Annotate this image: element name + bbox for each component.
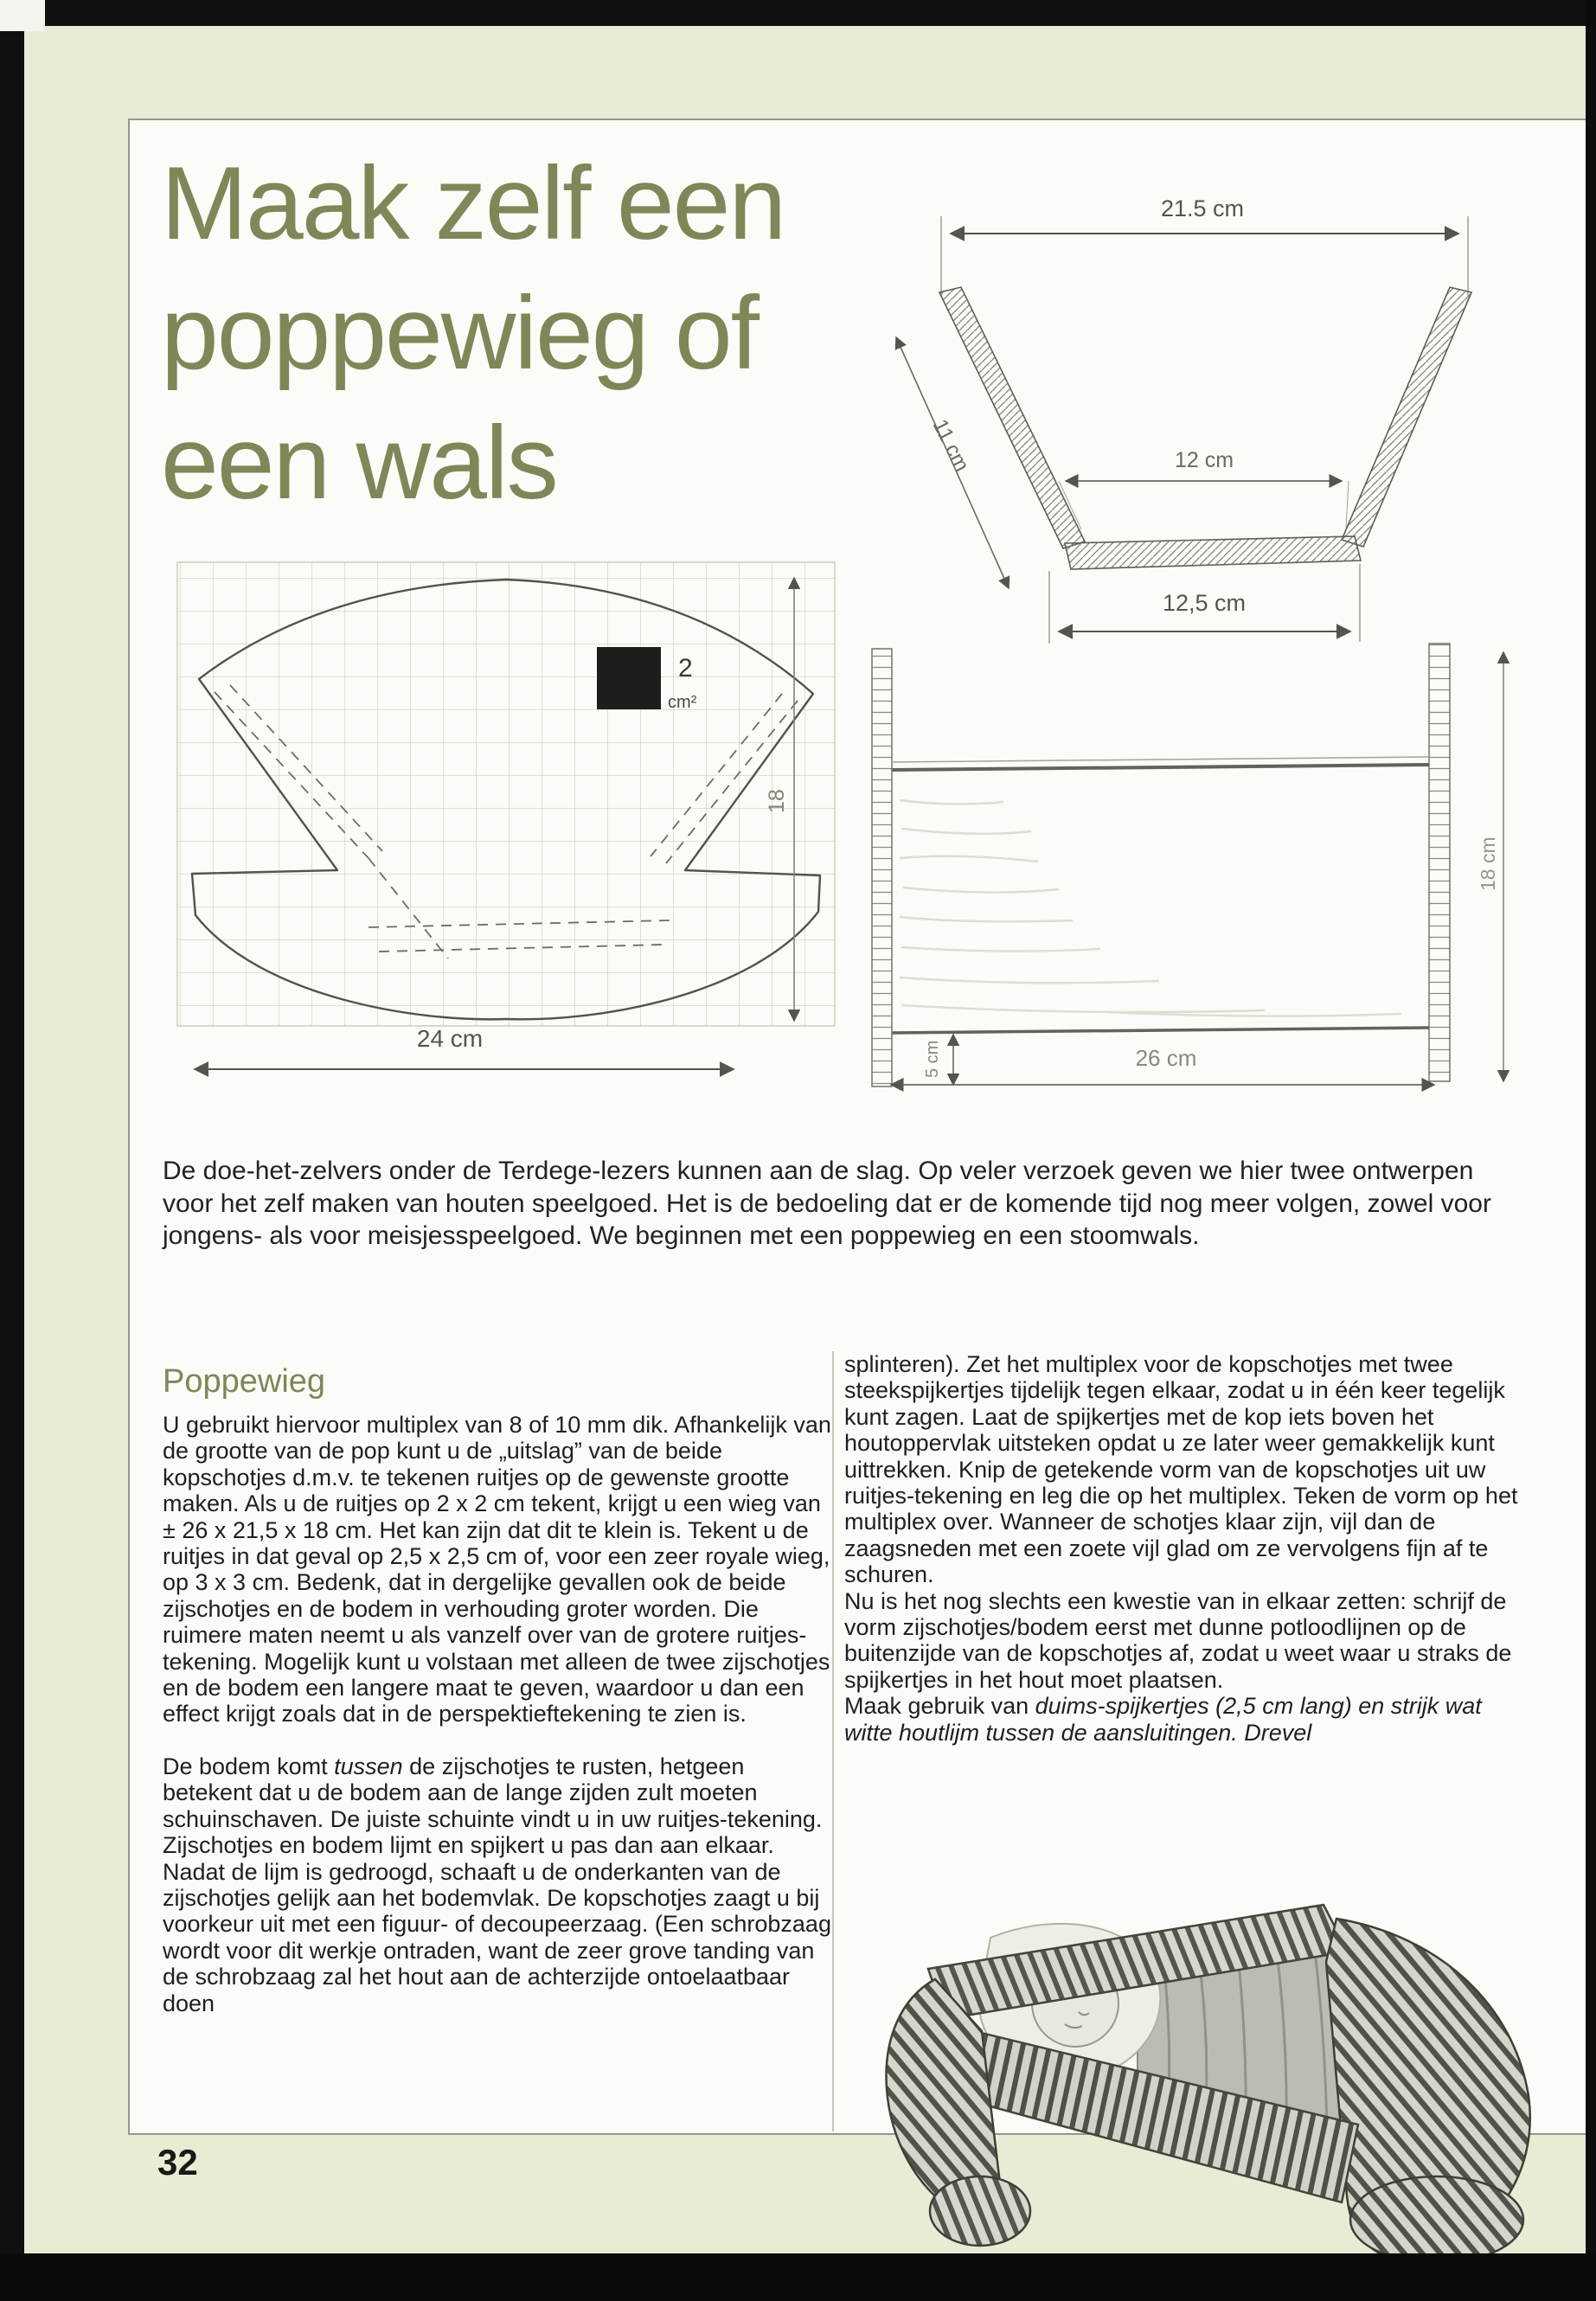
pencil-shading [900,800,1401,1016]
article-paragraph: U gebruikt hiervoor multiplex van 8 of 1… [163,1412,839,1727]
dim-label-top-width: 21.5 cm [1161,195,1244,221]
dim-label-side: 11 cm [928,415,974,475]
scan-corner [0,0,45,31]
left-side-wall [939,287,1085,548]
dim-label-height: 18 [765,789,789,813]
article-paragraph: Nu is het nog slechts een kwestie van in… [844,1588,1529,1694]
scale-square [597,647,661,709]
page-title: Maak zelf een poppewieg of een wals [161,138,939,528]
page-number: 32 [157,2142,198,2183]
right-end-board [1429,644,1450,1081]
dim-label-side-height: 18 cm [1477,836,1499,891]
right-rocker [1350,2176,1523,2263]
side-view-diagram: 5 cm 26 cm 18 cm [848,606,1557,1112]
dim-label-inner-width: 12 cm [1175,448,1234,472]
top-rail [892,765,1429,770]
intro-paragraph: De doe-het-zelvers onder de Terdege-leze… [163,1155,1522,1253]
headboard-grid-diagram: 2 cm² 24 cm 18 [147,545,865,1094]
page-title-line3: een wals [161,398,939,528]
dim-label-width: 24 cm [417,1025,483,1052]
page-edge-bottom [0,2253,1596,2301]
magazine-page: Maak zelf een poppewieg of een wals 21.5… [0,0,1596,2301]
scale-square-value: 2 [678,654,693,683]
scale-square-unit: cm² [668,693,697,712]
left-rocker [930,2176,1030,2246]
top-rail-edge [892,757,1429,762]
cross-section-diagram: 21.5 cm 12 cm 12,5 cm 11 cm [865,121,1574,679]
bottom-rail [892,1028,1429,1033]
article-paragraph: Maak gebruik van duims-spijkertjes (2,5 … [844,1693,1529,1746]
dim-label-length: 26 cm [1136,1045,1197,1071]
page-title-line2: poppewieg of [161,268,939,398]
page-title-line1: Maak zelf een [161,138,939,268]
left-end-board [872,649,892,1086]
article-heading: Poppewieg [163,1363,839,1400]
right-side-wall [1342,287,1471,547]
article-paragraph: Zijschotjes en bodem lijmt en spijkert u… [163,1832,839,2016]
page-edge-right [1586,0,1596,2301]
dim-label-offset: 5 cm [923,1041,942,1078]
cradle-illustration [852,1901,1557,2265]
article-paragraph: splinteren). Zet het multiplex voor de k… [844,1351,1529,1588]
article-right-column: splinteren). Zet het multiplex voor de k… [844,1351,1529,1746]
bottom-plank [1065,536,1361,569]
article-paragraph: De bodem komt tussen de zijschotjes te r… [163,1753,839,1832]
article-left-column: Poppewieg U gebruikt hiervoor multiplex … [163,1363,839,2016]
